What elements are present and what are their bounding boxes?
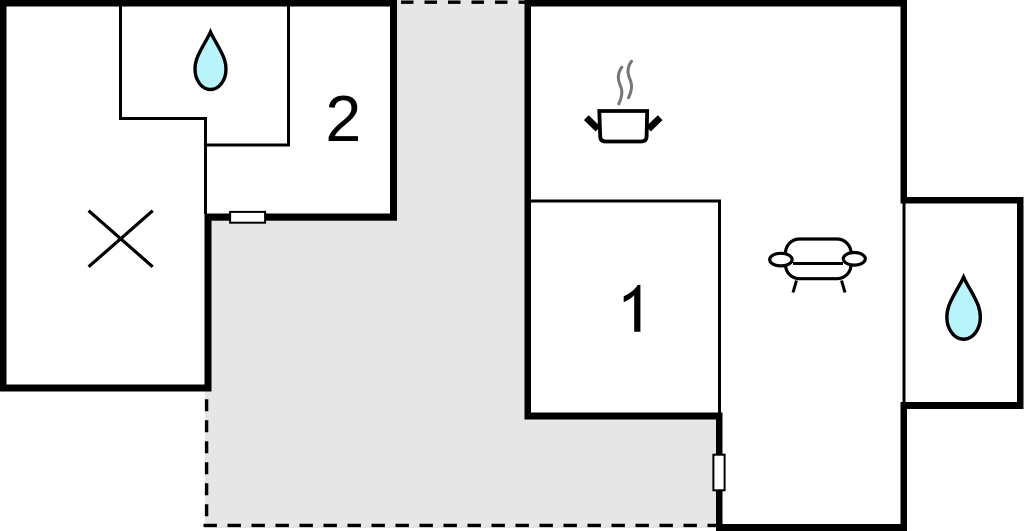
svg-text:2: 2 — [325, 83, 361, 155]
